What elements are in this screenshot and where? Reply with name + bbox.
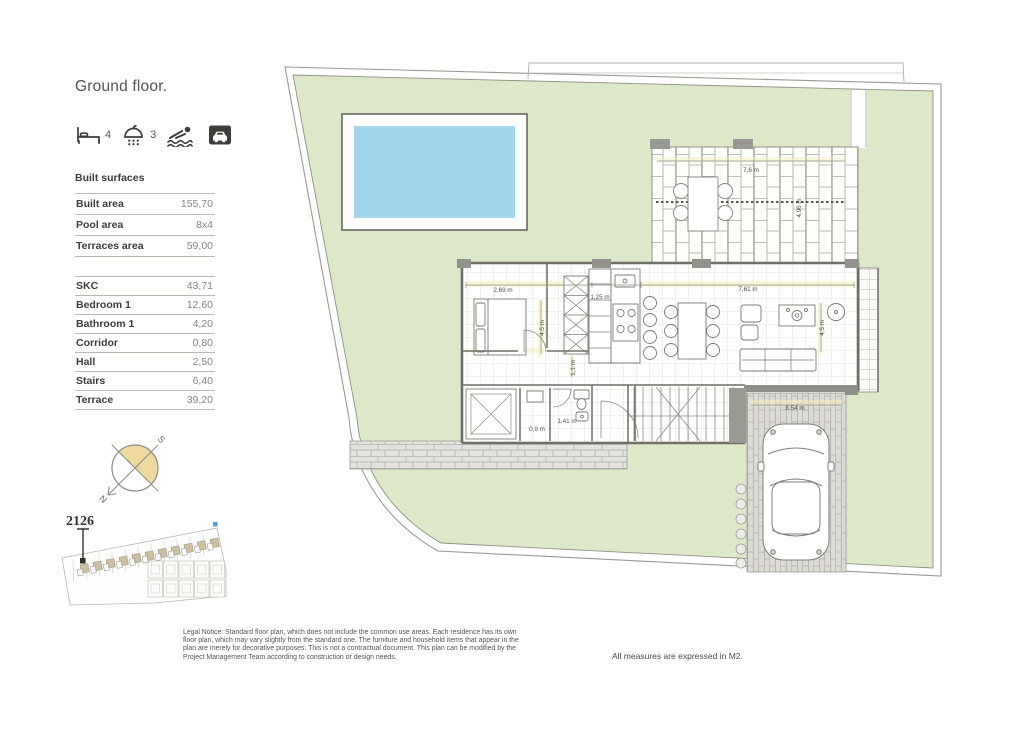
terrace-pier: [650, 139, 670, 149]
dimension-label: 8,54 m: [785, 405, 804, 412]
terrace: [650, 139, 858, 268]
driveway: [736, 393, 846, 572]
units-note: All measures are expressed in M2.: [612, 651, 743, 661]
terrace-pier: [733, 139, 753, 149]
dimension-label: 0,9 m: [529, 426, 545, 433]
garden-path: [350, 441, 627, 469]
ground-floor-plan: 2,69 m1,25 m7,61 m4,5 m4,5 m1,1 m0,9 m1,…: [0, 0, 1024, 732]
washbasin: [576, 412, 588, 421]
dimension-label: 4,5 m: [539, 320, 546, 336]
floor-plan-page: Ground floor. 4: [0, 0, 1024, 732]
round-table: [828, 304, 845, 321]
dimension-label: 7,61 m: [738, 286, 757, 293]
patio-lightwell: [466, 389, 516, 439]
dimension-label: 1,1 m: [570, 360, 577, 376]
dimension-label: 1,25 m: [590, 294, 609, 301]
stove: [613, 304, 638, 341]
utility-fixture: [527, 391, 543, 402]
pool-water: [354, 126, 515, 218]
dimension-label: 7,6 m: [743, 167, 759, 174]
sideboard: [779, 305, 815, 326]
side-terrace-strip: [858, 268, 878, 392]
side-path: [850, 90, 867, 148]
dimension-label: 4,96 m: [796, 198, 803, 217]
legal-notice: Legal Notice: Standard floor plan, which…: [183, 629, 527, 662]
dimension-label: 1,41 m: [557, 418, 576, 425]
wardrobe: [564, 276, 588, 354]
dimension-label: 4,5 m: [819, 320, 826, 336]
sofa: [740, 349, 816, 371]
dimension-label: 2,69 m: [493, 287, 512, 294]
swimming-pool: [342, 114, 527, 230]
bed: [474, 299, 526, 355]
car: [758, 424, 834, 560]
dining-set: [665, 303, 720, 359]
